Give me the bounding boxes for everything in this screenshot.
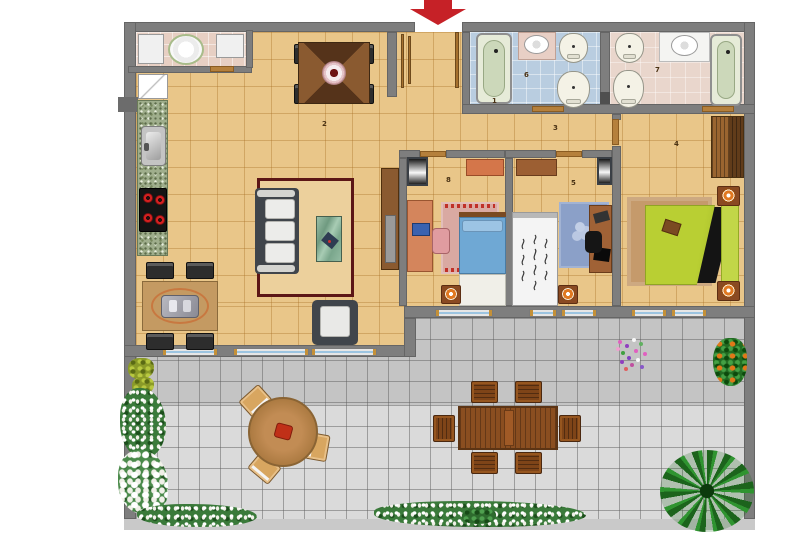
wall-hall-bathroom bbox=[462, 32, 470, 105]
sofa-cushion bbox=[265, 199, 295, 219]
door-bedroom4 bbox=[612, 119, 619, 145]
window-bedroom4-1 bbox=[631, 309, 667, 317]
hedge-bottom-left bbox=[137, 504, 257, 527]
wall-left-pillar bbox=[118, 97, 138, 112]
teddy-bear-motif bbox=[575, 222, 585, 232]
room-label-bathroom-blue: 6 bbox=[524, 72, 529, 79]
bed-pillow-section bbox=[721, 205, 739, 285]
patio-chair bbox=[471, 381, 498, 403]
bathtub-blue-bathroom bbox=[476, 33, 512, 104]
kitchen-chair bbox=[146, 262, 174, 279]
toilet-blue-bathroom bbox=[557, 71, 590, 108]
kitchen-table bbox=[142, 281, 218, 331]
kitchen-chair bbox=[186, 262, 214, 279]
desk-item bbox=[593, 210, 610, 224]
room-label-bedroom-left: 8 bbox=[446, 177, 451, 184]
fridge bbox=[138, 74, 168, 99]
wall-bedroom8-top-b bbox=[446, 150, 505, 158]
coffee-table bbox=[316, 216, 342, 262]
window-living-2 bbox=[233, 348, 309, 356]
hall-closet-door-leaf-1 bbox=[401, 34, 404, 88]
armchair-cushion bbox=[320, 306, 350, 337]
entrance-arrow-icon bbox=[424, 0, 452, 9]
window-bedroom8 bbox=[435, 309, 493, 317]
window-bedroom4-2 bbox=[671, 309, 707, 317]
bed-white bbox=[512, 212, 558, 306]
room-label-entrance-hall: 1 bbox=[492, 98, 497, 105]
room-label-corridor: 3 bbox=[553, 125, 558, 132]
hall-closet-door-leaf-2 bbox=[408, 36, 411, 84]
kitchen-chair bbox=[186, 333, 214, 350]
blanket bbox=[459, 274, 506, 306]
utility-appliance bbox=[138, 34, 164, 64]
palm-plant bbox=[660, 450, 754, 532]
lamp bbox=[721, 283, 736, 298]
bed-duvet-pattern bbox=[513, 213, 557, 305]
armchair bbox=[312, 300, 358, 345]
door-bedroom5 bbox=[556, 151, 582, 157]
window-bedroom5-2 bbox=[561, 309, 597, 317]
door-bathroom-pink bbox=[702, 106, 734, 112]
lamp bbox=[561, 287, 575, 301]
bathtub-pink-bathroom bbox=[710, 34, 742, 106]
stove bbox=[139, 188, 167, 232]
entrance-arrow-head-icon bbox=[410, 9, 466, 25]
patio-chair bbox=[433, 415, 455, 442]
door-bathroom-blue bbox=[532, 106, 564, 112]
desk-chair-bedroom5 bbox=[585, 231, 602, 253]
patio-chair bbox=[471, 452, 498, 474]
bed-green bbox=[645, 205, 739, 285]
floor-plan: 1 2 3 4 5 6 7 8 bbox=[0, 0, 800, 533]
sink-pink-bathroom bbox=[671, 35, 698, 56]
kitchen-sink bbox=[141, 126, 166, 166]
wardrobe-bedroom4 bbox=[711, 116, 744, 178]
room-label-living-room: 2 bbox=[322, 121, 327, 128]
tv-bedroom8 bbox=[407, 157, 428, 186]
bidet-blue-bathroom bbox=[559, 33, 588, 63]
wall-right bbox=[744, 22, 755, 519]
kitchen-table-item bbox=[161, 295, 199, 318]
window-living-3 bbox=[311, 348, 377, 356]
washing-machine bbox=[168, 34, 204, 65]
mini-flower-patch bbox=[618, 340, 622, 344]
toilet-pink-bathroom bbox=[613, 70, 644, 108]
wall-living-bedroom8 bbox=[399, 158, 407, 306]
bush bbox=[128, 358, 154, 379]
dining-table-centerpiece bbox=[322, 61, 346, 85]
kitchen-chair bbox=[146, 333, 174, 350]
sofa bbox=[255, 188, 299, 274]
window-bedroom5-1 bbox=[529, 309, 557, 317]
wall-top-left bbox=[128, 22, 415, 32]
door-utility bbox=[210, 66, 234, 72]
utility-counter bbox=[216, 34, 244, 58]
wall-bedroom5-top-a bbox=[505, 150, 556, 158]
wall-bedroom4-left-b bbox=[612, 146, 621, 306]
wardrobe-living-side bbox=[381, 168, 399, 270]
entrance-door-leaf bbox=[455, 32, 459, 88]
patio-chair bbox=[559, 415, 581, 442]
tv-bedroom5 bbox=[597, 157, 612, 185]
grass-tuft bbox=[462, 508, 496, 524]
wall-hall-living bbox=[387, 32, 397, 97]
dresser-bedroom5 bbox=[516, 159, 557, 176]
desk-chair-bedroom8 bbox=[432, 228, 450, 254]
lamp bbox=[444, 287, 458, 301]
wall-utility-right bbox=[246, 30, 253, 68]
pillow bbox=[462, 220, 503, 232]
bush-orange-flowers bbox=[713, 338, 747, 386]
kitchen-counter bbox=[137, 100, 168, 256]
laptop bbox=[412, 223, 430, 236]
room-label-bedroom-right: 4 bbox=[674, 141, 679, 148]
lamp bbox=[721, 188, 736, 203]
patio-dining-table bbox=[458, 406, 558, 450]
room-label-bedroom-middle: 5 bbox=[571, 180, 576, 187]
wall-step bbox=[404, 318, 416, 357]
wall-top-right bbox=[462, 22, 755, 32]
room-label-bathroom-pink: 7 bbox=[655, 67, 660, 74]
dresser-bedroom8 bbox=[466, 159, 504, 176]
patio-chair bbox=[515, 381, 542, 403]
patio-chair bbox=[515, 452, 542, 474]
sofa-cushion bbox=[265, 221, 295, 241]
desk-bedroom8 bbox=[407, 200, 433, 272]
bidet-pink-bathroom bbox=[615, 33, 644, 63]
sofa-armrest bbox=[257, 265, 295, 272]
sofa-cushion bbox=[265, 243, 295, 263]
sofa-armrest bbox=[257, 190, 295, 197]
sink-blue-bathroom bbox=[524, 35, 549, 54]
bed-blue bbox=[459, 212, 506, 306]
